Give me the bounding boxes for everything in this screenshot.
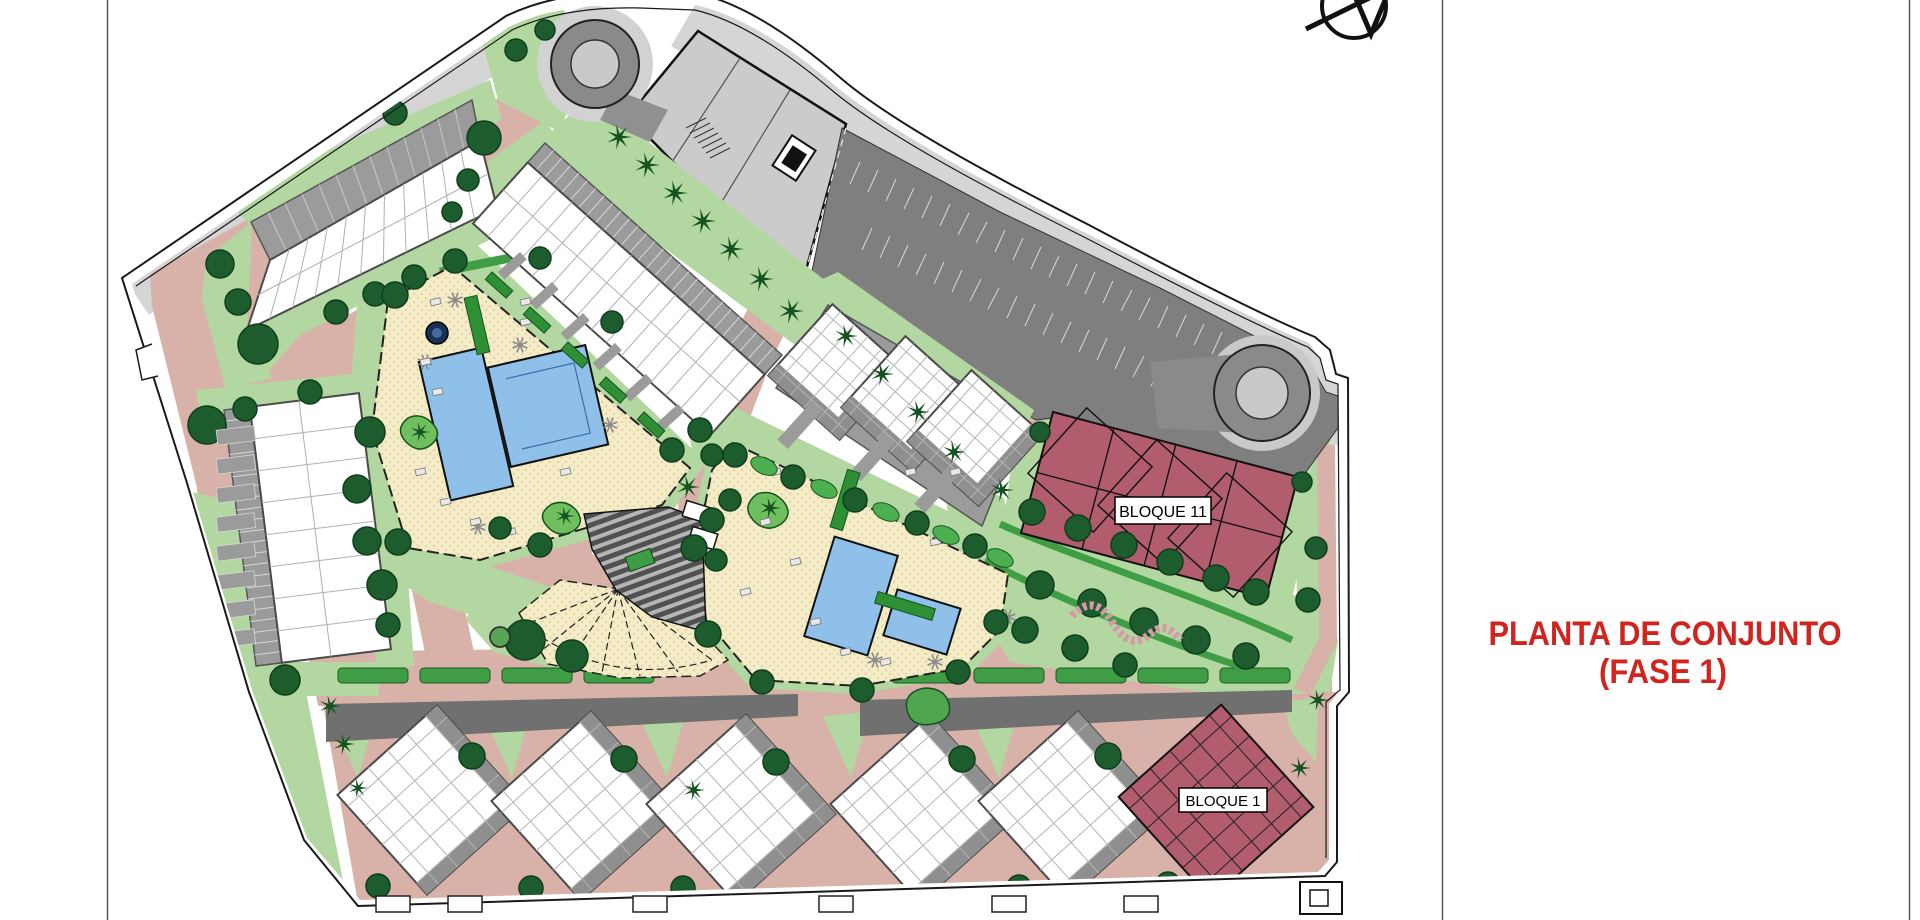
svg-text:(FASE 1): (FASE 1) [1599,653,1727,691]
svg-text:BLOQUE 1: BLOQUE 1 [1185,793,1260,810]
svg-text:PLANTA DE CONJUNTO: PLANTA DE CONJUNTO [1489,615,1842,653]
svg-text:BLOQUE 11: BLOQUE 11 [1119,504,1207,521]
